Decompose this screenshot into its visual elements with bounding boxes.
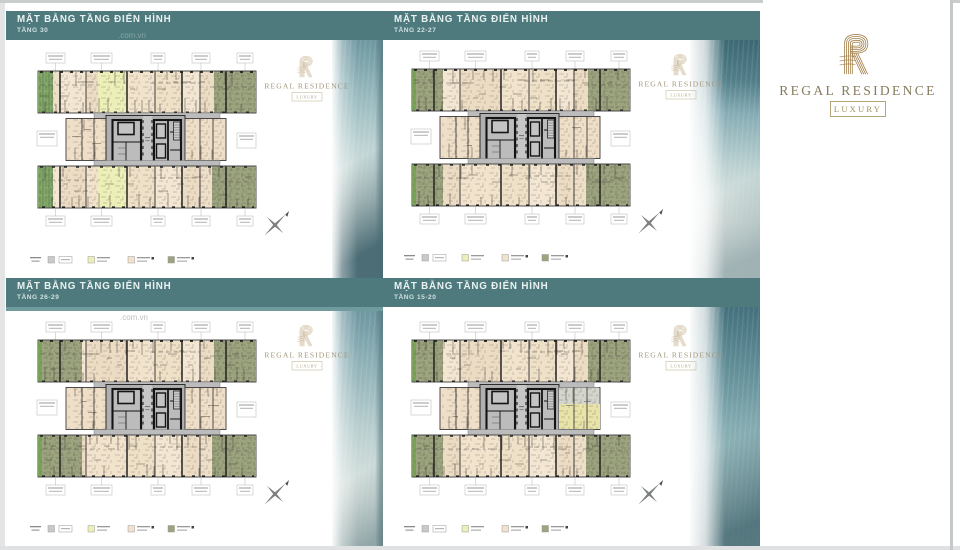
svg-text:REGAL RESIDENCE: REGAL RESIDENCE: [264, 82, 349, 91]
svg-text:LUXURY: LUXURY: [296, 364, 317, 369]
svg-text:REGAL RESIDENCE: REGAL RESIDENCE: [638, 80, 723, 89]
svg-text:LUXURY: LUXURY: [670, 93, 691, 98]
svg-text:LUXURY: LUXURY: [296, 95, 317, 100]
svg-text:REGAL RESIDENCE: REGAL RESIDENCE: [264, 351, 349, 360]
svg-text:REGAL RESIDENCE: REGAL RESIDENCE: [638, 351, 723, 360]
svg-text:LUXURY: LUXURY: [670, 364, 691, 369]
